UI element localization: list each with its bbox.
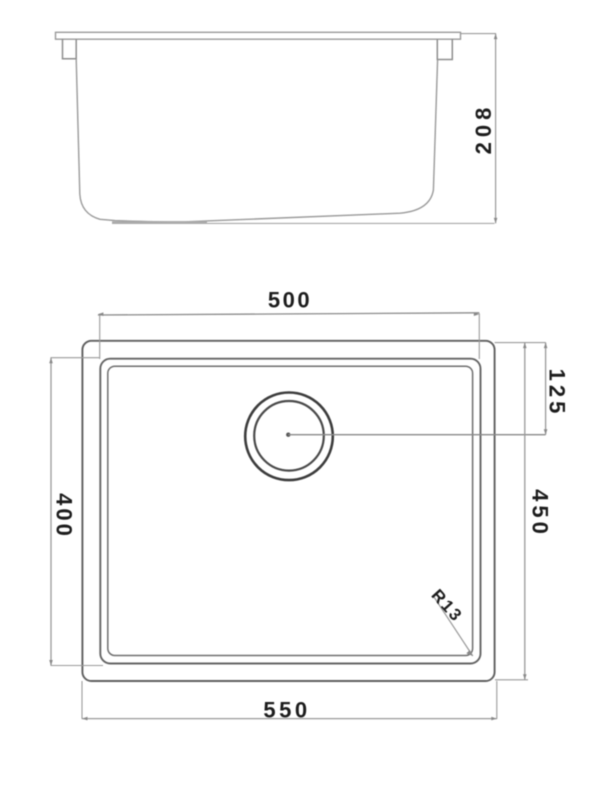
svg-text:550: 550 [263,698,310,723]
svg-text:208: 208 [471,103,496,155]
svg-text:450: 450 [528,489,553,538]
svg-text:500: 500 [268,288,312,313]
svg-text:R13: R13 [428,586,467,626]
svg-text:400: 400 [52,493,77,539]
svg-text:125: 125 [545,369,570,418]
